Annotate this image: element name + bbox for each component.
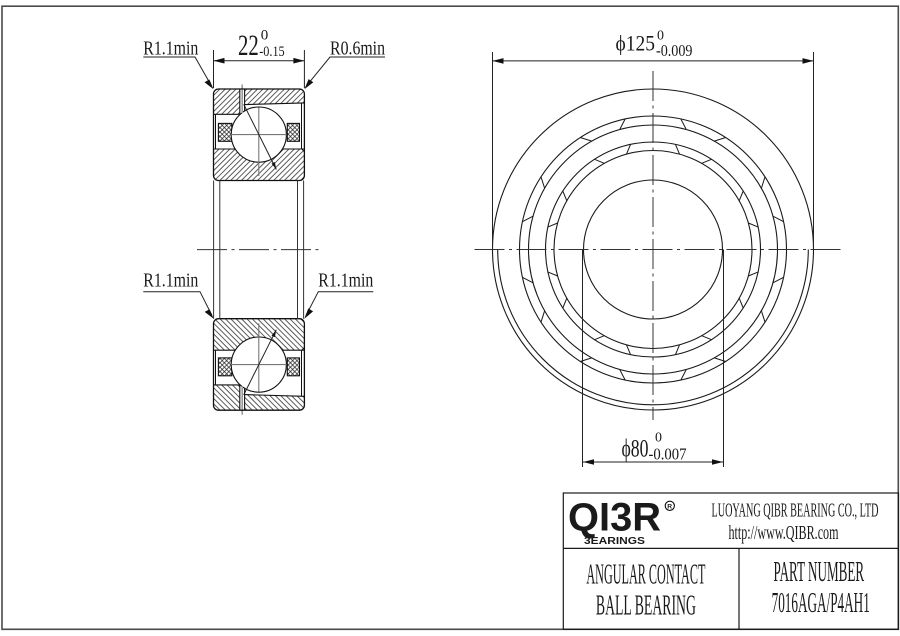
svg-text:7016AGA/P4AH1: 7016AGA/P4AH1 <box>772 588 870 619</box>
svg-text:R0.6min: R0.6min <box>330 39 385 60</box>
svg-text:QI3R: QI3R <box>568 496 661 540</box>
svg-text:ϕ125: ϕ125 <box>616 31 656 56</box>
svg-text:http://www.QIBR.com: http://www.QIBR.com <box>729 522 839 544</box>
svg-text:0: 0 <box>261 28 269 44</box>
svg-text:3EARINGS: 3EARINGS <box>584 536 646 547</box>
svg-text:R: R <box>667 503 672 510</box>
svg-text:PART NUMBER: PART NUMBER <box>774 557 865 588</box>
svg-text:ANGULAR CONTACT: ANGULAR CONTACT <box>586 560 705 591</box>
svg-text:22: 22 <box>238 29 259 62</box>
svg-text:-0.15: -0.15 <box>259 44 285 60</box>
svg-text:-0.009: -0.009 <box>656 41 693 60</box>
svg-text:ϕ80: ϕ80 <box>622 435 649 462</box>
svg-text:R1.1min: R1.1min <box>143 39 198 60</box>
svg-text:0: 0 <box>655 431 662 446</box>
svg-text:R1.1min: R1.1min <box>143 270 198 291</box>
svg-text:BALL BEARING: BALL BEARING <box>596 591 696 622</box>
svg-text:R1.1min: R1.1min <box>318 270 373 291</box>
svg-text:-0.007: -0.007 <box>649 445 687 464</box>
svg-text:LUOYANG QIBR BEARING CO., LTD: LUOYANG QIBR BEARING CO., LTD <box>712 500 879 522</box>
